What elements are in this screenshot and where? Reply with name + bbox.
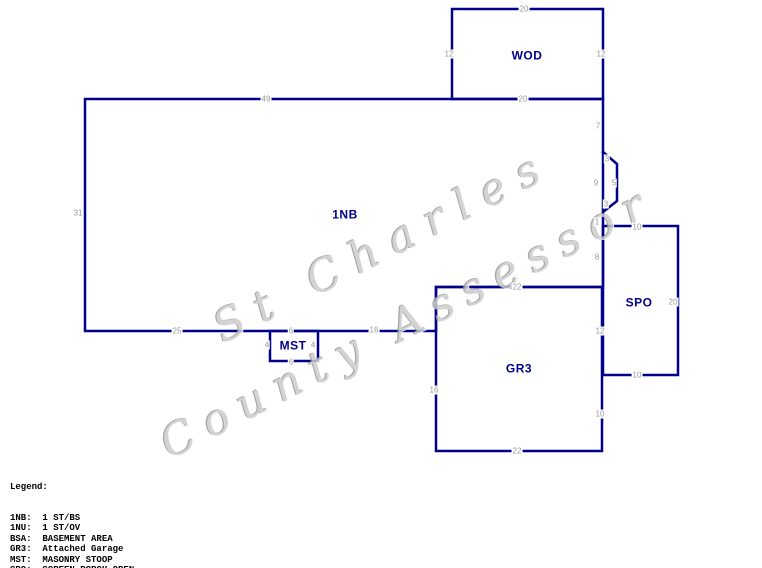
dimension-label: 6 [288, 327, 294, 336]
legend-title: Legend: [10, 482, 134, 492]
dimension-label: 49 [261, 95, 272, 104]
dimension-label: 6 [288, 358, 294, 367]
dimension-label: 20 [518, 95, 529, 104]
dimension-label: 25 [172, 327, 183, 336]
property-sketch-canvas: St Charles County Assessor 2012124920739… [0, 0, 762, 568]
dimension-label: 3 [604, 155, 610, 164]
dimension-label: 12 [596, 50, 607, 59]
legend-entry-bsa: BSA: BASEMENT AREA [10, 534, 134, 544]
area-label-mst: MST [278, 340, 309, 353]
legend-entries: 1NB: 1 ST/BS1NU: 1 ST/OVBSA: BASEMENT AR… [10, 513, 134, 568]
dimension-label: 9 [593, 179, 599, 188]
dimension-label: 7 [595, 122, 601, 131]
dimension-label: 20 [668, 298, 679, 307]
dimension-label: 22 [512, 447, 523, 456]
area-label-spo: SPO [624, 297, 655, 310]
dimension-label: 16 [429, 386, 440, 395]
legend: Legend: 1NB: 1 ST/BS1NU: 1 ST/OVBSA: BAS… [10, 461, 134, 568]
dimension-label: 3 [603, 200, 609, 209]
dimension-label: 4 [310, 341, 316, 350]
dimension-label: 22 [512, 283, 523, 292]
dimension-label: 20 [519, 5, 530, 14]
dimension-label: 5 [611, 179, 617, 188]
dimension-label: 16 [369, 326, 380, 335]
dimension-label: 12 [595, 327, 606, 336]
dimension-label: 10 [632, 223, 643, 232]
legend-entry-gr3: GR3: Attached Garage [10, 544, 134, 554]
area-label-gr3: GR3 [504, 363, 534, 376]
legend-entry-mst: MST: MASONRY STOOP [10, 555, 134, 565]
area-label-1nb: 1NB [330, 209, 360, 222]
dimension-label: 12 [444, 50, 455, 59]
dimension-label: 10 [632, 371, 643, 380]
legend-entry-1nu: 1NU: 1 ST/OV [10, 523, 134, 533]
dimension-label: 8 [594, 253, 600, 262]
dimension-label: 4 [264, 341, 270, 350]
dimension-label: 1 [594, 218, 600, 227]
legend-entry-1nb: 1NB: 1 ST/BS [10, 513, 134, 523]
dimension-label: 10 [595, 410, 606, 419]
area-label-wod: WOD [510, 50, 545, 63]
dimension-label: 31 [73, 209, 84, 218]
